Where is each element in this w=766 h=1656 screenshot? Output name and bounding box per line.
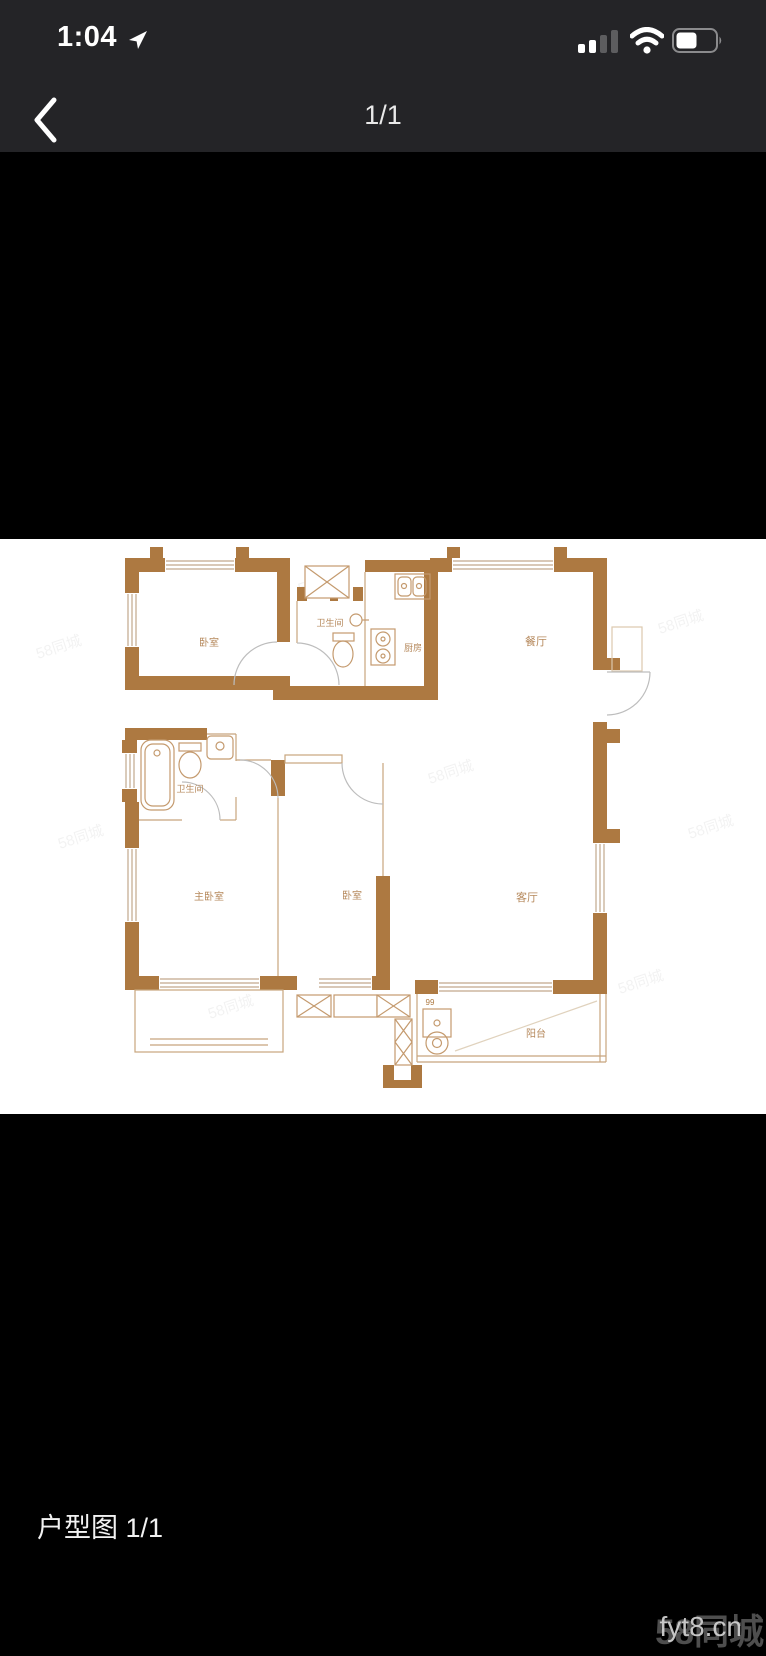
- floorplan-svg: 58同城 58同城 58同城 58同城 58同城 58同城 58同城 58同城: [0, 539, 766, 1114]
- room-label-bathroom-main: 卫生间: [176, 783, 203, 794]
- screen: 1:04 1/1 58同城 5: [0, 0, 766, 1656]
- sink-small-bath: [350, 614, 369, 626]
- svg-text:58同城: 58同城: [686, 812, 736, 843]
- doors: [182, 642, 650, 820]
- svg-text:58同城: 58同城: [616, 967, 666, 998]
- room-label-bathroom-small: 卫生间: [316, 617, 343, 628]
- location-arrow-icon: [128, 30, 148, 50]
- bathtub: [141, 740, 174, 810]
- shaft-mark: 99: [426, 998, 435, 1007]
- svg-text:58同城: 58同城: [656, 607, 706, 638]
- sink-main-bath: [207, 736, 233, 759]
- svg-text:58同城: 58同城: [56, 822, 106, 853]
- svg-text:58同城: 58同城: [426, 757, 476, 788]
- room-label-kitchen: 厨房: [404, 642, 422, 653]
- watermark-fyt8: fyt8.cn: [660, 1611, 742, 1643]
- room-label-bedroom-middle: 卧室: [342, 889, 362, 902]
- room-label-bedroom-top-left: 卧室: [199, 636, 219, 649]
- battery-icon: [672, 28, 724, 54]
- header: 1:04 1/1: [0, 0, 766, 152]
- kitchen-stove: [371, 629, 395, 665]
- utility-shaft-top: [305, 566, 349, 598]
- image-caption: 户型图 1/1: [37, 1506, 163, 1545]
- toilet-main-bath: [179, 743, 201, 778]
- washing-machine: [426, 1032, 448, 1054]
- room-label-dining: 餐厅: [525, 634, 547, 648]
- wifi-icon: [630, 27, 664, 55]
- room-label-master-bedroom: 主卧室: [194, 890, 224, 903]
- balcony-basin: [423, 1009, 451, 1037]
- shaft-boxes-bottom: [297, 995, 412, 1065]
- svg-text:58同城: 58同城: [34, 632, 84, 663]
- svg-text:58同城: 58同城: [206, 992, 256, 1023]
- page-indicator: 1/1: [0, 100, 766, 131]
- toilet-small-bath: [333, 633, 354, 667]
- floorplan-image[interactable]: 58同城 58同城 58同城 58同城 58同城 58同城 58同城 58同城: [0, 539, 766, 1114]
- cellular-signal-icon: [578, 27, 624, 55]
- clock-time: 1:04: [57, 21, 117, 54]
- room-label-living-room: 客厅: [516, 890, 538, 904]
- room-label-balcony: 阳台: [526, 1027, 546, 1040]
